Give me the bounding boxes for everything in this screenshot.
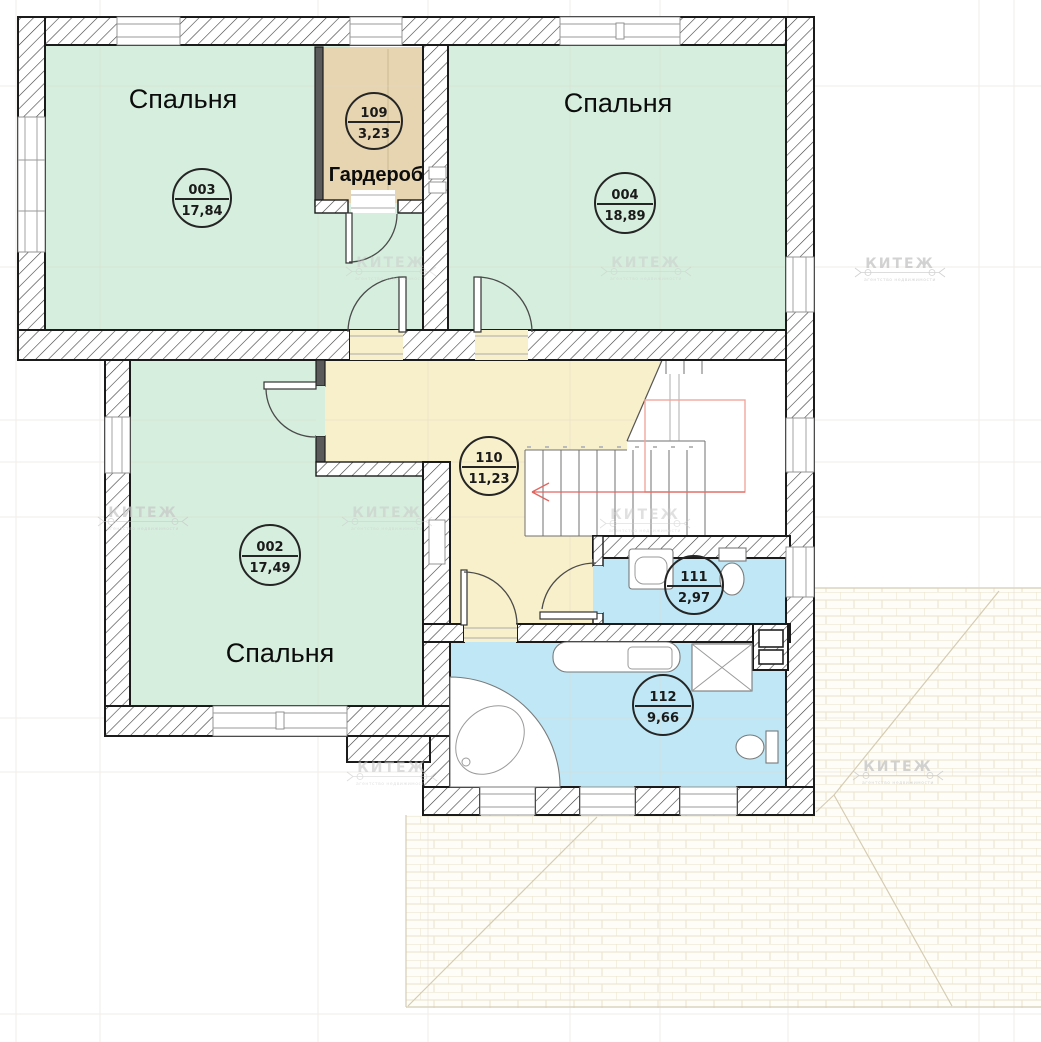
window-002-bottom	[213, 706, 347, 736]
window-109-top	[350, 17, 402, 45]
label-bedroom-004: Спальня	[564, 88, 673, 118]
wall-wardrobe-bottom-left	[315, 200, 348, 213]
opening-002-hall	[316, 386, 325, 436]
stamp-004-area: 18,89	[604, 209, 645, 224]
stamp-110-area: 11,23	[468, 472, 509, 487]
stamp-003-area: 17,84	[181, 204, 222, 219]
duct-in-wall-lower	[429, 182, 446, 193]
wall-112-pier-1	[423, 787, 480, 815]
kitezh-watermark: КИТЕЖ агентство недвижимости	[346, 255, 436, 282]
window-112-bottom-2	[580, 787, 635, 815]
wall-002-partition-lower	[316, 436, 325, 462]
wall-111-top	[593, 536, 790, 558]
wall-bath-band-west	[423, 624, 464, 642]
wall-002-step	[316, 462, 430, 476]
stamp-002-number: 002	[256, 540, 283, 555]
wall-112-pier-4	[737, 787, 814, 815]
window-004-right	[786, 257, 814, 312]
opening-004-hall	[475, 330, 528, 360]
window-003-top	[117, 17, 180, 45]
stamp-112-area: 9,66	[647, 711, 679, 726]
watermark-text: КИТЕЖ	[356, 255, 425, 271]
window-stair-right	[786, 418, 814, 472]
stamp-109-area: 3,23	[358, 127, 390, 142]
watermark-subtext: агентство недвижимости	[864, 278, 936, 283]
watermark-text: КИТЕЖ	[352, 505, 421, 521]
stamp-004-number: 004	[611, 188, 638, 203]
wall-right	[786, 17, 814, 815]
label-bedroom-003: Спальня	[129, 84, 238, 114]
wall-003-bottom	[18, 330, 350, 360]
roof-bottom-plane	[406, 815, 1041, 1008]
window-004-top	[560, 17, 680, 45]
stamp-111-number: 111	[680, 570, 707, 585]
label-wardrobe-109: Гардероб	[329, 164, 424, 186]
vent-niche	[429, 520, 445, 564]
wall-left-lower	[105, 360, 130, 736]
kitezh-watermark: КИТЕЖ агентство недвижимости	[853, 759, 943, 786]
wall-002-partition-upper	[316, 360, 325, 386]
kitezh-watermark: КИТЕЖ агентство недвижимости	[855, 256, 945, 283]
watermark-subtext: агентство недвижимости	[107, 527, 179, 532]
sink-111	[629, 549, 673, 589]
duct-in-wall-upper	[429, 167, 446, 179]
stamp-111-area: 2,97	[678, 591, 710, 606]
watermark-text: КИТЕЖ	[865, 256, 934, 272]
opening-112-hall	[464, 624, 517, 642]
opening-111-hall	[593, 566, 603, 613]
kitezh-watermark: КИТЕЖ агентство недвижимости	[342, 505, 432, 532]
wall-002-bottom-step	[347, 736, 430, 762]
window-003-left	[18, 117, 45, 252]
watermark-text: КИТЕЖ	[357, 760, 426, 776]
wall-112-pier-3	[635, 787, 680, 815]
window-112-bottom-3	[680, 787, 737, 815]
kitezh-watermark: КИТЕЖ агентство недвижимости	[98, 505, 188, 532]
kitezh-watermark: КИТЕЖ агентство недвижимости	[600, 507, 690, 534]
watermark-text: КИТЕЖ	[108, 505, 177, 521]
stamp-003-number: 003	[188, 183, 215, 198]
watermark-subtext: агентство недвижимости	[356, 782, 428, 787]
kitezh-watermark: КИТЕЖ агентство недвижимости	[347, 760, 437, 787]
window-112-bottom-1	[480, 787, 535, 815]
watermark-subtext: агентство недвижимости	[609, 529, 681, 534]
hall-110-floor-west	[325, 360, 450, 462]
stamp-110-number: 110	[475, 451, 502, 466]
floor-plan-page: 003 17,84 109 3,23 004 18,89 002 17,49 1…	[0, 0, 1041, 1042]
shower-niche-lower	[759, 650, 783, 664]
shower-niche-upper	[759, 630, 783, 647]
watermark-text: КИТЕЖ	[611, 255, 680, 271]
opening-wardrobe	[351, 190, 395, 213]
watermark-subtext: агентство недвижимости	[862, 781, 934, 786]
watermark-text: КИТЕЖ	[863, 759, 932, 775]
watermark-text: КИТЕЖ	[610, 507, 679, 523]
stamp-109-number: 109	[360, 106, 387, 121]
wall-112-pier-2	[535, 787, 580, 815]
counter-sink-112	[553, 642, 680, 672]
watermark-subtext: агентство недвижимости	[610, 277, 682, 282]
opening-003-hall	[350, 330, 403, 360]
wall-wardrobe-bottom-right	[398, 200, 425, 213]
wall-004-bottom	[350, 330, 814, 360]
shower-112	[692, 644, 752, 691]
kitezh-watermark: КИТЕЖ агентство недвижимости	[601, 255, 691, 282]
stamp-112-number: 112	[649, 690, 676, 705]
watermark-subtext: агентство недвижимости	[355, 277, 427, 282]
window-002-left	[105, 417, 130, 473]
wall-wardrobe-left	[315, 47, 323, 205]
window-111-right	[786, 547, 814, 597]
stamp-002-area: 17,49	[249, 561, 290, 576]
label-bedroom-002: Спальня	[226, 638, 335, 668]
floor-plan-svg: 003 17,84 109 3,23 004 18,89 002 17,49 1…	[0, 0, 1041, 1042]
wall-bath-band-east	[517, 624, 790, 642]
wall-111-left-upper	[593, 536, 603, 566]
watermark-subtext: агентство недвижимости	[351, 527, 423, 532]
